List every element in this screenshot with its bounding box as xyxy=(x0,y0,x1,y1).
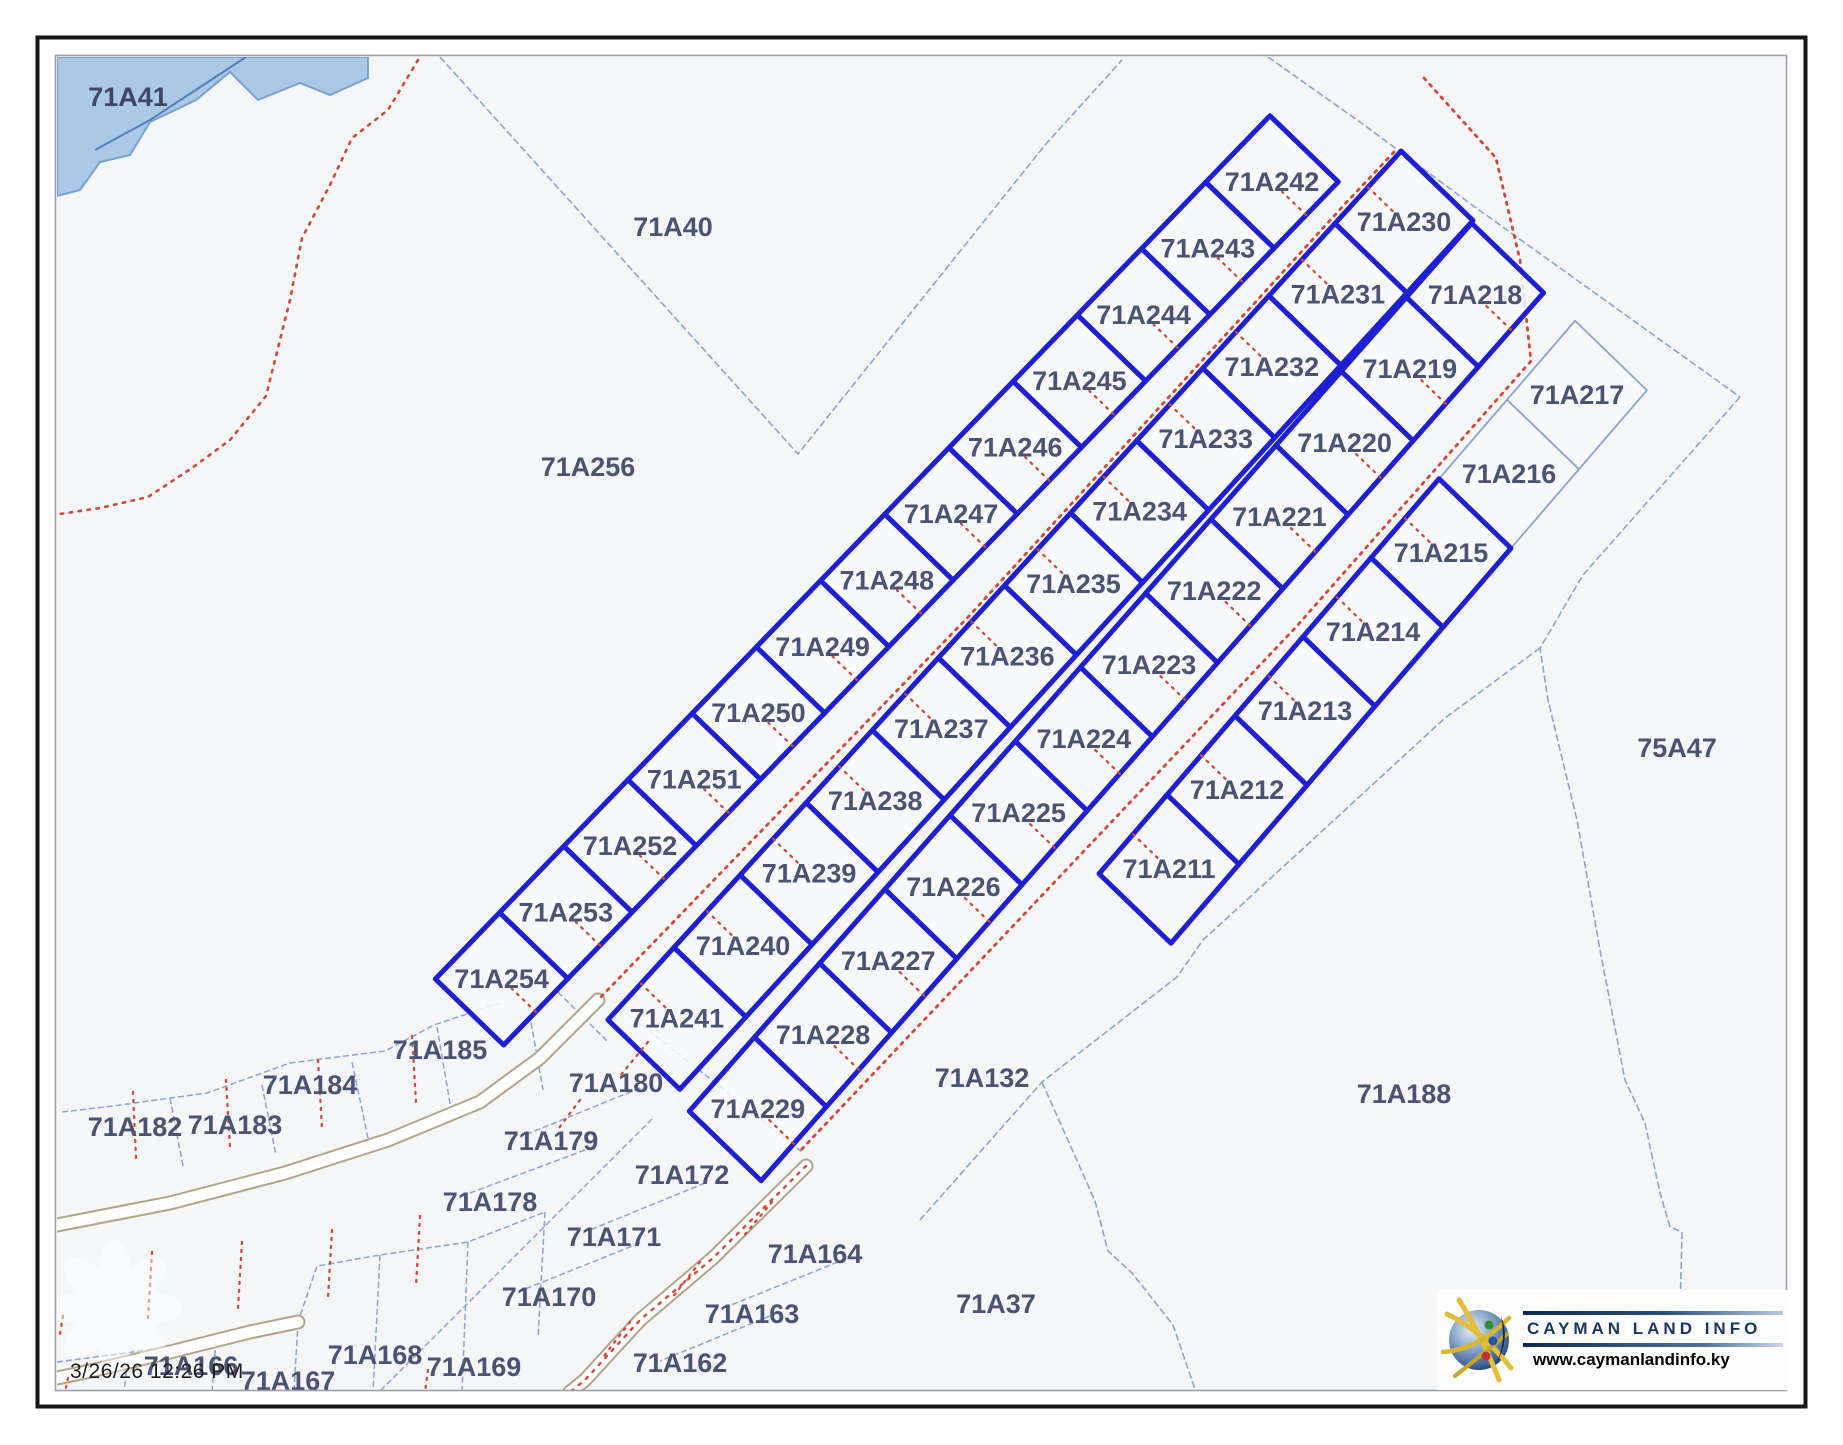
region-label-71A188: 71A188 xyxy=(1357,1079,1452,1109)
parcel-label-71A243: 71A243 xyxy=(1161,233,1256,263)
parcel-label-71A230: 71A230 xyxy=(1357,207,1452,237)
parcel-label-71A240: 71A240 xyxy=(696,931,791,961)
parcel-label-71A242: 71A242 xyxy=(1225,167,1320,197)
parcel-label-71A223: 71A223 xyxy=(1102,650,1197,680)
parcel-label-71A232: 71A232 xyxy=(1225,352,1320,382)
region-label-71A185: 71A185 xyxy=(393,1035,488,1065)
parcel-label-71A224: 71A224 xyxy=(1037,724,1132,754)
parcel-label-71A246: 71A246 xyxy=(968,433,1063,463)
region-label-71A256: 71A256 xyxy=(541,452,636,482)
parcel-label-71A253: 71A253 xyxy=(519,897,614,927)
parcel-label-71A238: 71A238 xyxy=(828,786,923,816)
parcel-label-71A217: 71A217 xyxy=(1530,380,1625,410)
parcel-label-71A216: 71A216 xyxy=(1462,459,1557,489)
region-label-71A171: 71A171 xyxy=(567,1222,662,1252)
parcel-label-71A227: 71A227 xyxy=(841,946,936,976)
region-label-71A179: 71A179 xyxy=(504,1126,599,1156)
cayman-land-info-logo[interactable]: CAYMAN LAND INFO www.caymanlandinfo.ky xyxy=(1437,1290,1789,1390)
parcel-label-71A211: 71A211 xyxy=(1122,854,1215,884)
map-canvas[interactable]: 71A24271A24371A24471A24571A24671A24771A2… xyxy=(0,0,1843,1445)
region-label-71A164: 71A164 xyxy=(768,1239,863,1269)
parcel-label-71A250: 71A250 xyxy=(711,698,806,728)
region-label-71A37: 71A37 xyxy=(956,1289,1036,1319)
region-label-71A180: 71A180 xyxy=(569,1068,664,1098)
globe-icon xyxy=(1437,1292,1523,1388)
parcel-label-71A235: 71A235 xyxy=(1026,569,1121,599)
parcel-label-71A214: 71A214 xyxy=(1326,617,1421,647)
region-label-71A178: 71A178 xyxy=(443,1187,538,1217)
region-label-71A167: 71A167 xyxy=(241,1366,336,1396)
parcel-label-71A229: 71A229 xyxy=(711,1094,806,1124)
region-label-71A184: 71A184 xyxy=(263,1070,358,1100)
parcel-label-71A215: 71A215 xyxy=(1394,538,1489,568)
region-label-71A170: 71A170 xyxy=(502,1282,597,1312)
region-label-71A182: 71A182 xyxy=(88,1112,183,1142)
region-label-71A162: 71A162 xyxy=(633,1348,728,1378)
parcel-label-71A231: 71A231 xyxy=(1291,279,1386,309)
parcel-label-71A237: 71A237 xyxy=(894,714,989,744)
parcel-label-71A251: 71A251 xyxy=(647,765,742,795)
region-label-71A41: 71A41 xyxy=(88,82,168,112)
parcel-label-71A220: 71A220 xyxy=(1297,428,1392,458)
parcel-label-71A228: 71A228 xyxy=(776,1020,871,1050)
logo-website[interactable]: www.caymanlandinfo.ky xyxy=(1523,1347,1783,1370)
parcel-label-71A254: 71A254 xyxy=(454,964,549,994)
parcel-label-71A248: 71A248 xyxy=(840,565,935,595)
parcel-label-71A233: 71A233 xyxy=(1158,424,1253,454)
parcel-label-71A239: 71A239 xyxy=(762,859,857,889)
parcel-label-71A225: 71A225 xyxy=(971,798,1066,828)
parcel-label-71A244: 71A244 xyxy=(1096,300,1191,330)
map-page: 71A24271A24371A24471A24571A24671A24771A2… xyxy=(0,0,1843,1445)
region-label-75A47: 75A47 xyxy=(1637,733,1717,763)
region-label-71A40: 71A40 xyxy=(633,212,713,242)
parcel-label-71A219: 71A219 xyxy=(1363,354,1458,384)
region-label-71A163: 71A163 xyxy=(705,1299,800,1329)
region-label-71A132: 71A132 xyxy=(935,1063,1030,1093)
parcel-label-71A212: 71A212 xyxy=(1190,775,1285,805)
parcel-label-71A213: 71A213 xyxy=(1258,696,1353,726)
parcel-label-71A226: 71A226 xyxy=(906,872,1001,902)
parcel-label-71A236: 71A236 xyxy=(960,641,1055,671)
region-label-71A183: 71A183 xyxy=(188,1110,283,1140)
parcel-label-71A245: 71A245 xyxy=(1032,366,1127,396)
parcel-label-71A252: 71A252 xyxy=(583,831,678,861)
parcel-label-71A218: 71A218 xyxy=(1428,280,1523,310)
map-area: 71A24271A24371A24471A24571A24671A24771A2… xyxy=(47,57,1786,1396)
parcel-label-71A221: 71A221 xyxy=(1232,502,1327,532)
parcel-label-71A247: 71A247 xyxy=(904,499,999,529)
region-label-71A169: 71A169 xyxy=(427,1352,522,1382)
region-label-71A172: 71A172 xyxy=(635,1160,730,1190)
parcel-label-71A234: 71A234 xyxy=(1092,497,1187,527)
parcel-label-71A222: 71A222 xyxy=(1167,576,1262,606)
timestamp: 3/26/26 12:26 PM xyxy=(70,1360,244,1384)
parcel-label-71A249: 71A249 xyxy=(775,632,870,662)
logo-title: CAYMAN LAND INFO xyxy=(1523,1315,1783,1343)
parcel-label-71A241: 71A241 xyxy=(630,1003,725,1033)
region-label-71A168: 71A168 xyxy=(328,1340,423,1370)
